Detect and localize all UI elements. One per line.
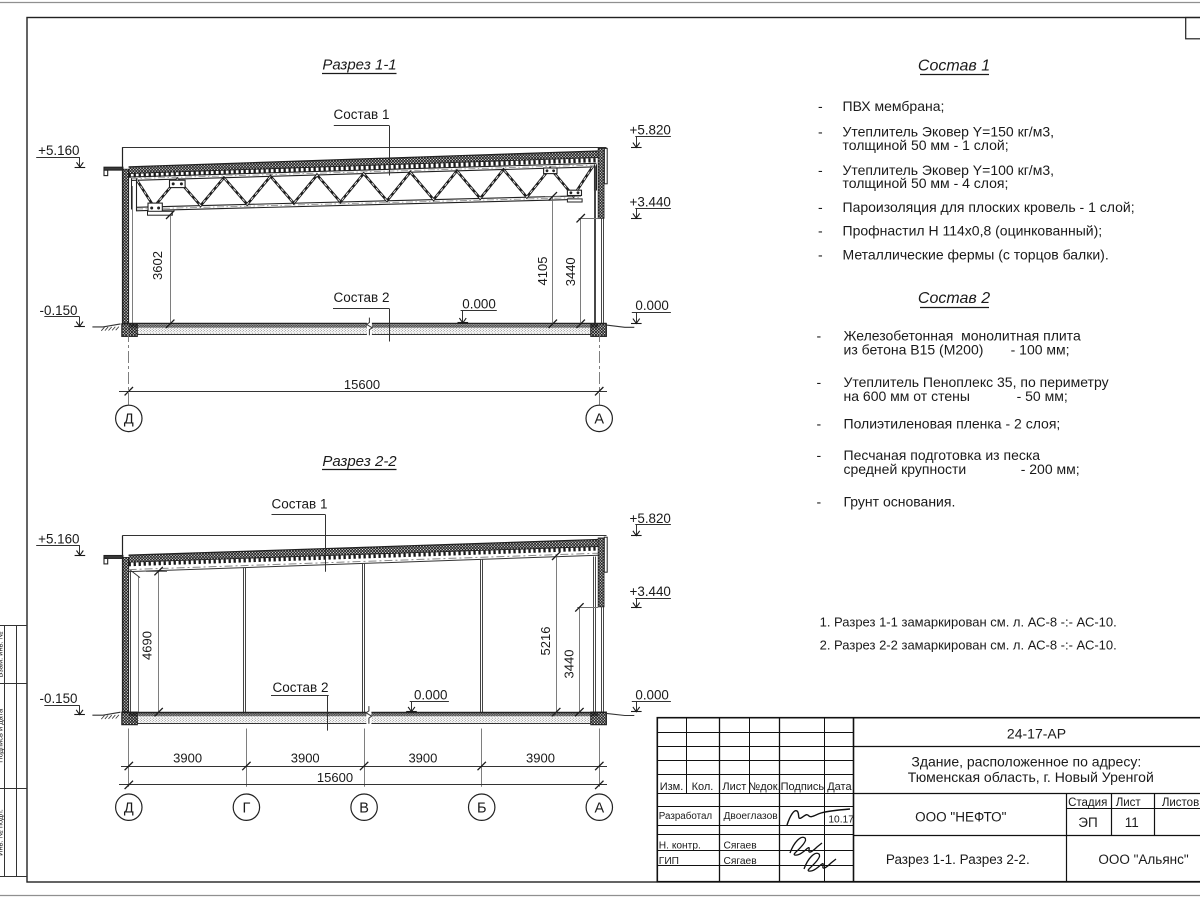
svg-text:3440: 3440 — [561, 650, 576, 679]
svg-text:Состав 1: Состав 1 — [272, 496, 328, 511]
svg-text:-: - — [817, 447, 822, 463]
svg-text:15600: 15600 — [344, 377, 380, 392]
svg-text:24-17-АР: 24-17-АР — [1007, 726, 1066, 742]
svg-text:-: - — [817, 374, 822, 390]
svg-text:+3.440: +3.440 — [630, 584, 671, 599]
svg-text:4105: 4105 — [535, 257, 550, 286]
svg-text:ЭП: ЭП — [1078, 815, 1097, 830]
svg-text:0.000: 0.000 — [462, 297, 496, 312]
svg-text:11: 11 — [1125, 815, 1139, 830]
svg-text:5216: 5216 — [538, 627, 553, 656]
svg-text:Тюменская область, г. Новый Ур: Тюменская область, г. Новый Уренгой — [908, 769, 1154, 785]
svg-text:Лист: Лист — [722, 781, 746, 793]
svg-text:3440: 3440 — [563, 257, 578, 286]
svg-text:Состав 2: Состав 2 — [334, 290, 390, 305]
svg-text:-: - — [818, 199, 823, 215]
svg-text:-: - — [817, 416, 822, 432]
svg-text:Дата: Дата — [827, 781, 852, 793]
svg-text:средней крупности: средней крупности - 200 мм; — [844, 461, 1080, 477]
svg-text:+5.160: +5.160 — [38, 143, 79, 158]
svg-text:Лист: Лист — [1116, 797, 1142, 809]
svg-text:Д: Д — [124, 800, 134, 816]
svg-text:Б: Б — [477, 800, 487, 816]
svg-text:Здание, расположенное по адрес: Здание, расположенное по адресу: — [911, 753, 1141, 769]
svg-text:0.000: 0.000 — [414, 687, 448, 702]
svg-text:А: А — [594, 800, 604, 816]
svg-text:-: - — [817, 328, 822, 344]
svg-text:0.000: 0.000 — [635, 688, 669, 703]
svg-text:4690: 4690 — [139, 631, 154, 660]
svg-text:-: - — [818, 98, 823, 114]
svg-text:толщиной 50 мм - 1 слой;: толщиной 50 мм - 1 слой; — [843, 137, 1009, 153]
svg-text:Грунт основания.: Грунт основания. — [844, 494, 956, 510]
svg-text:№док.: №док. — [748, 781, 780, 793]
svg-text:3900: 3900 — [291, 751, 320, 766]
svg-text:2. Разрез 2-2 замаркирован см.: 2. Разрез 2-2 замаркирован см. л. АС-8 -… — [820, 638, 1117, 653]
svg-text:Состав 2: Состав 2 — [918, 290, 990, 307]
svg-text:Двоеглазов: Двоеглазов — [724, 811, 778, 822]
svg-text:толщиной 50 мм - 4 слоя;: толщиной 50 мм - 4 слоя; — [843, 175, 1009, 191]
svg-text:0.000: 0.000 — [635, 298, 669, 313]
svg-text:ООО "НЕФТО": ООО "НЕФТО" — [915, 809, 1006, 824]
svg-text:Пароизоляция для плоских крове: Пароизоляция для плоских кровель - 1 сло… — [843, 199, 1135, 215]
svg-text:-: - — [818, 162, 823, 178]
svg-text:на 600 мм от стены: на 600 мм от стены - 50 мм; — [844, 388, 1068, 404]
svg-text:Стадия: Стадия — [1068, 797, 1107, 809]
svg-text:+5.820: +5.820 — [630, 511, 671, 526]
svg-text:+5.160: +5.160 — [38, 532, 79, 547]
svg-text:-: - — [818, 223, 823, 239]
svg-text:+5.820: +5.820 — [630, 123, 671, 138]
svg-text:Н. контр.: Н. контр. — [659, 841, 701, 852]
svg-text:-0.150: -0.150 — [40, 303, 78, 318]
svg-text:3900: 3900 — [173, 751, 202, 766]
svg-text:Взам. инв. №: Взам. инв. № — [0, 631, 5, 677]
svg-text:Подпись: Подпись — [781, 781, 825, 793]
svg-text:Состав 1: Состав 1 — [334, 107, 390, 122]
svg-text:Инв. № подл.: Инв. № подл. — [0, 809, 5, 856]
svg-text:Г: Г — [242, 800, 250, 816]
svg-text:+3.440: +3.440 — [630, 195, 671, 210]
svg-text:ГИП: ГИП — [659, 856, 679, 867]
svg-text:Металлические фермы (с торцов: Металлические фермы (с торцов балки). — [843, 247, 1109, 263]
svg-text:Д: Д — [124, 412, 134, 428]
svg-text:Профнастил Н 114х0,8 (оцинкова: Профнастил Н 114х0,8 (оцинкованный); — [843, 223, 1103, 239]
svg-text:3900: 3900 — [408, 751, 437, 766]
svg-text:В: В — [359, 800, 369, 816]
svg-text:Кол.: Кол. — [692, 781, 714, 793]
svg-text:-: - — [818, 247, 823, 263]
svg-text:ПВХ мембрана;: ПВХ мембрана; — [843, 98, 945, 114]
svg-text:ООО "Альянс": ООО "Альянс" — [1098, 852, 1188, 867]
svg-text:3602: 3602 — [150, 251, 165, 280]
svg-text:Полиэтиленовая пленка - 2 слоя: Полиэтиленовая пленка - 2 слоя; — [844, 416, 1061, 432]
svg-text:Подпись и дата: Подпись и дата — [0, 708, 5, 763]
svg-text:3900: 3900 — [526, 751, 555, 766]
svg-text:15600: 15600 — [317, 770, 353, 785]
svg-text:Изм.: Изм. — [660, 781, 684, 793]
svg-text:Разрез 1-1. Разрез 2-2.: Разрез 1-1. Разрез 2-2. — [886, 852, 1030, 867]
svg-text:-: - — [818, 124, 823, 140]
svg-text:Разрез 2-2: Разрез 2-2 — [322, 453, 397, 470]
svg-text:Состав 1: Состав 1 — [918, 58, 990, 75]
svg-text:Разработал: Разработал — [659, 811, 713, 822]
svg-text:-0.150: -0.150 — [40, 691, 78, 706]
svg-text:Сягаев: Сягаев — [724, 856, 757, 867]
svg-text:Состав 2: Состав 2 — [273, 680, 329, 695]
svg-text:Сягаев: Сягаев — [724, 841, 757, 852]
svg-text:Разрез 1-1: Разрез 1-1 — [322, 57, 396, 74]
svg-text:10.17: 10.17 — [828, 814, 854, 825]
svg-text:из бетона В15 (М200) - 1: из бетона В15 (М200) - 100 мм; — [844, 342, 1070, 358]
svg-text:А: А — [594, 412, 604, 428]
svg-text:-: - — [817, 494, 822, 510]
svg-text:Листов: Листов — [1162, 797, 1199, 809]
svg-text:1. Разрез 1-1 замаркирован см.: 1. Разрез 1-1 замаркирован см. л. АС-8 -… — [820, 615, 1117, 630]
